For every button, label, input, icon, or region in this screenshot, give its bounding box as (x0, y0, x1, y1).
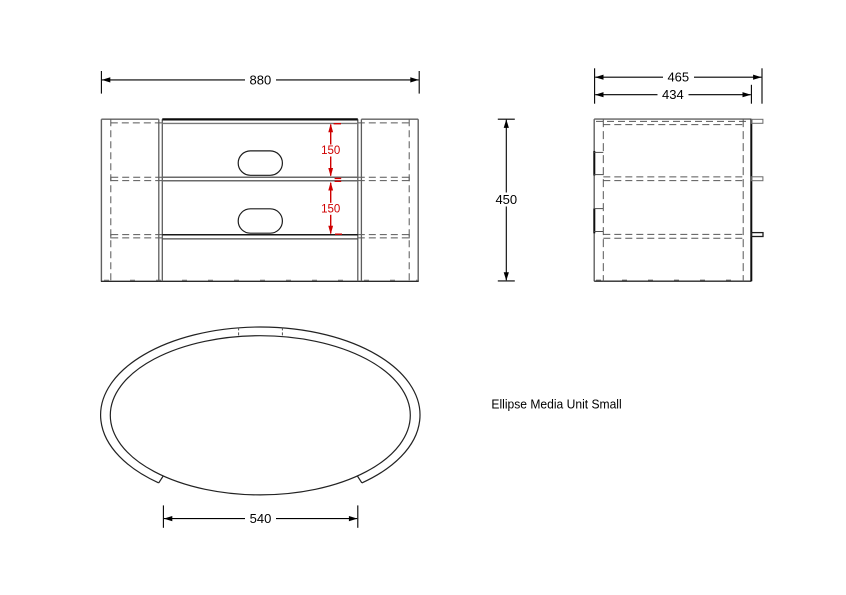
svg-text:450: 450 (495, 192, 517, 207)
svg-text:434: 434 (662, 87, 684, 102)
svg-text:465: 465 (667, 70, 689, 85)
svg-text:150: 150 (321, 145, 340, 157)
svg-text:150: 150 (321, 204, 340, 216)
svg-text:880: 880 (250, 72, 272, 87)
svg-text:540: 540 (250, 511, 272, 526)
svg-text:Ellipse Media Unit Small: Ellipse Media Unit Small (491, 398, 621, 412)
